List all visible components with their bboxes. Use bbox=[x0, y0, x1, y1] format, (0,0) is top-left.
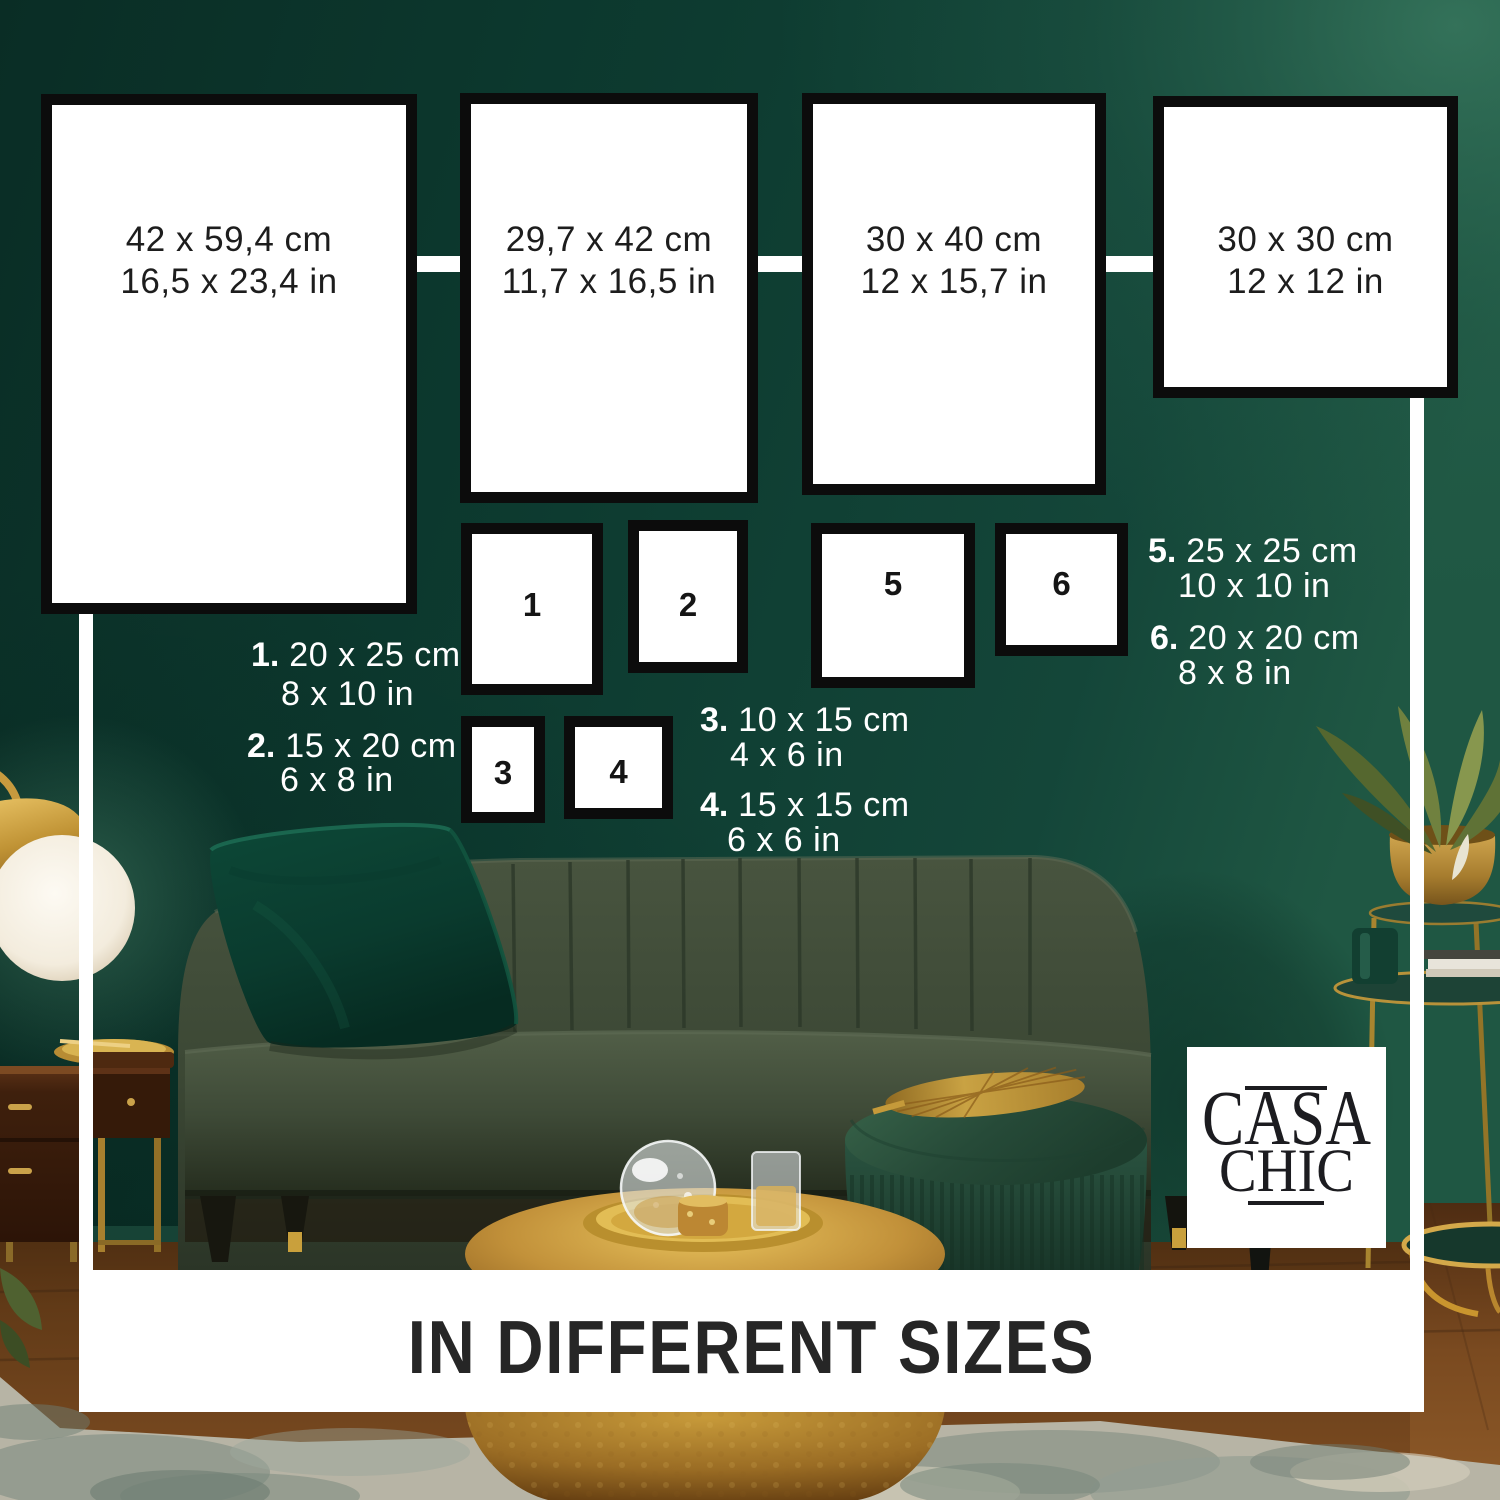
svg-text:CHIC: CHIC bbox=[1219, 1138, 1354, 1205]
